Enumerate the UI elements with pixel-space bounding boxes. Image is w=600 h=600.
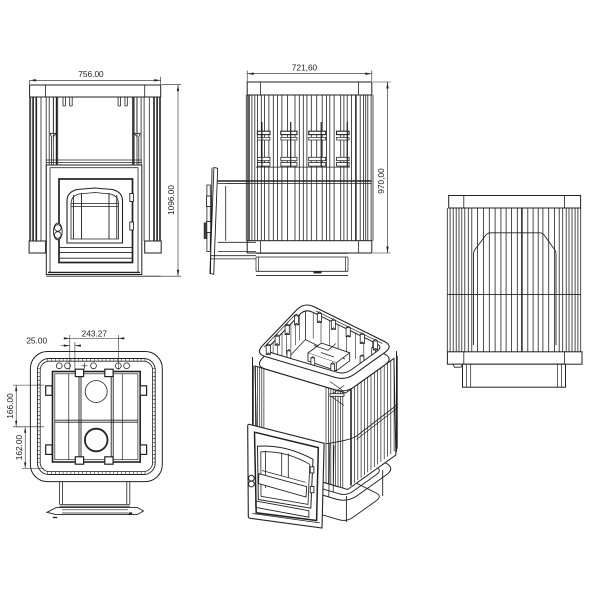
svg-text:166.00: 166.00 bbox=[5, 393, 15, 419]
svg-text:243.27: 243.27 bbox=[82, 328, 108, 338]
svg-text:721,60: 721,60 bbox=[292, 63, 318, 73]
svg-text:162.00: 162.00 bbox=[14, 435, 24, 461]
svg-text:1096.00: 1096.00 bbox=[166, 185, 176, 215]
svg-text:756.00: 756.00 bbox=[78, 69, 104, 79]
svg-text:25.00: 25.00 bbox=[26, 336, 47, 346]
svg-text:970,00: 970,00 bbox=[376, 168, 386, 194]
